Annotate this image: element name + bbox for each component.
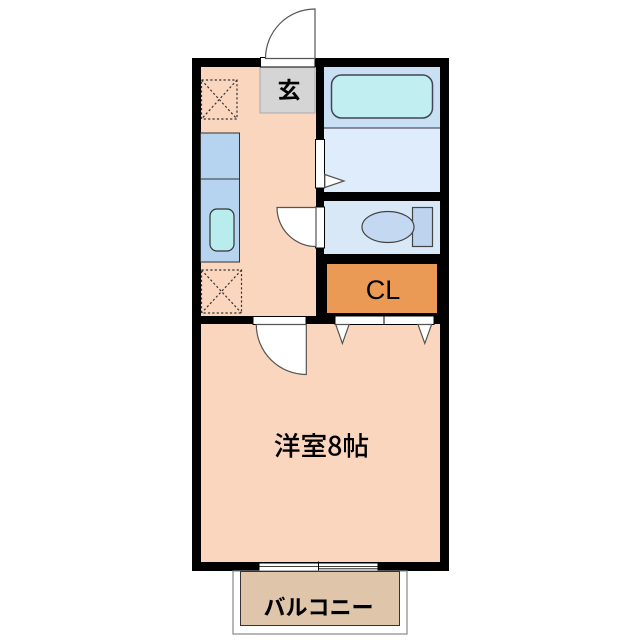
svg-text:CL: CL	[366, 275, 401, 305]
